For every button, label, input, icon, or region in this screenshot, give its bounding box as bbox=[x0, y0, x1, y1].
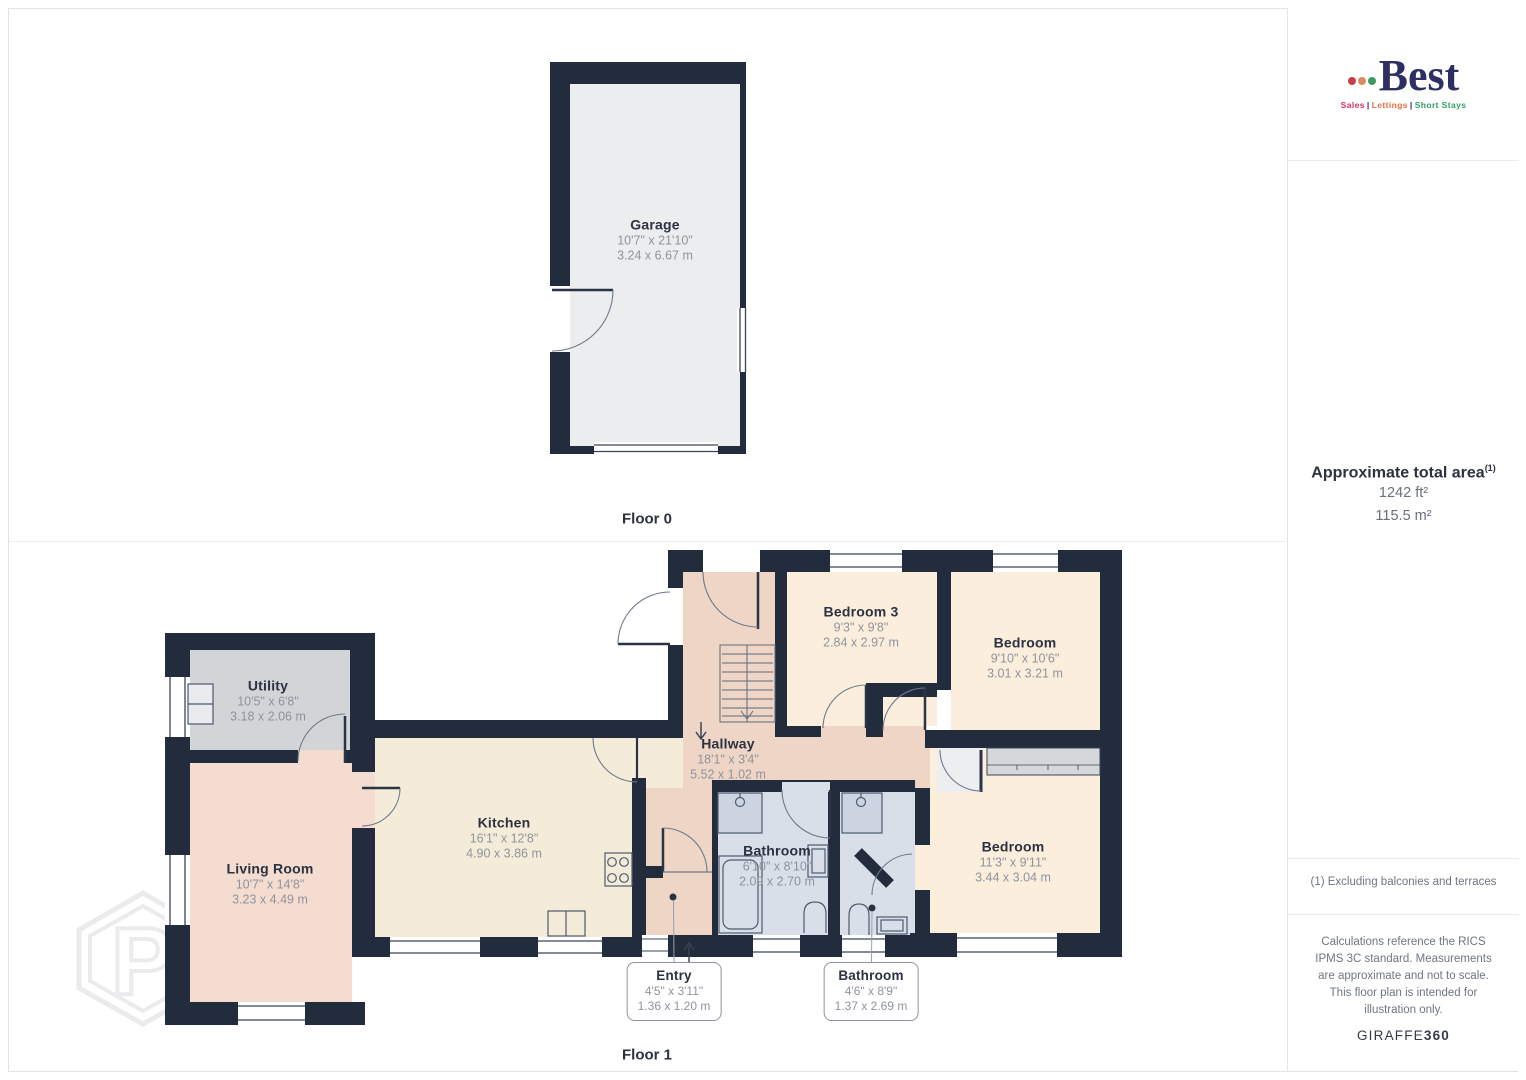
floor-1-label: Floor 1 bbox=[622, 1047, 672, 1064]
kitchen-doorway-floor bbox=[646, 738, 683, 788]
total-area-sqm: 115.5 m² bbox=[1288, 505, 1519, 528]
bathroom-shower bbox=[718, 793, 762, 833]
floor1-plan bbox=[165, 550, 1122, 1025]
floor-plan-canvas: P bbox=[8, 8, 1286, 1072]
room-label-garage: Garage 10'7" x 21'10" 3.24 x 6.67 m bbox=[617, 217, 693, 264]
room-label-utility: Utility 10'5" x 6'8" 3.18 x 2.06 m bbox=[230, 678, 306, 725]
agency-logo: Best Sales|Lettings|Short Stays bbox=[1288, 56, 1519, 110]
bathroom2-shower bbox=[842, 793, 882, 833]
logo-tagline: Sales|Lettings|Short Stays bbox=[1288, 100, 1519, 110]
logo-wordmark: Best bbox=[1379, 56, 1460, 96]
garage-floor bbox=[570, 84, 740, 446]
entry-hall-floor bbox=[646, 788, 712, 935]
floor-0-label: Floor 0 bbox=[622, 511, 672, 528]
floorplan-page: P bbox=[0, 0, 1526, 1080]
sidebar-divider-3 bbox=[1288, 914, 1519, 915]
disclaimer-text: Calculations reference the RICS IPMS 3C … bbox=[1288, 934, 1519, 1019]
stair-exterior-door bbox=[618, 592, 670, 644]
stairwell-floor bbox=[683, 572, 775, 738]
room-label-bedroom3: Bedroom 3 9'3" x 9'8" 2.84 x 2.97 m bbox=[823, 604, 899, 651]
room-label-bedroom-top-right: Bedroom 9'10" x 10'6" 3.01 x 3.21 m bbox=[987, 635, 1063, 682]
wardrobe bbox=[987, 748, 1100, 775]
giraffe360-brandmark: GIRAFFE360 bbox=[1288, 1028, 1519, 1043]
sidebar-divider-2 bbox=[1288, 858, 1519, 859]
garage-window bbox=[737, 308, 748, 372]
area-footnote: (1) Excluding balconies and terraces bbox=[1288, 876, 1519, 888]
garage-vehicle-door bbox=[594, 442, 718, 454]
room-label-bedroom-bottom-right: Bedroom 11'3" x 9'11" 3.44 x 3.04 m bbox=[975, 839, 1051, 886]
room-label-bathroom: Bathroom 6'10" x 8'10" 2.09 x 2.70 m bbox=[739, 843, 815, 890]
logo-dots-icon bbox=[1348, 77, 1376, 85]
utility-sink bbox=[188, 684, 213, 724]
total-area-block: Approximate total area(1) 1242 ft² 115.5… bbox=[1288, 463, 1519, 528]
room-label-living-room: Living Room 10'7" x 14'8" 3.23 x 4.49 m bbox=[227, 861, 314, 908]
sidebar: Best Sales|Lettings|Short Stays Approxim… bbox=[1287, 8, 1519, 1071]
room-label-kitchen: Kitchen 16'1" x 12'8" 4.90 x 3.86 m bbox=[466, 815, 542, 862]
room-label-hallway: Hallway 18'1" x 3'4" 5.52 x 1.02 m bbox=[690, 736, 766, 783]
callout-entry: Entry 4'5" x 3'11" 1.36 x 1.20 m bbox=[627, 962, 722, 1021]
sidebar-divider-1 bbox=[1288, 160, 1519, 161]
callout-bathroom2: Bathroom 4'6" x 8'9" 1.37 x 2.69 m bbox=[824, 962, 919, 1021]
total-area-title: Approximate total area(1) bbox=[1288, 463, 1519, 482]
total-area-sqft: 1242 ft² bbox=[1288, 482, 1519, 505]
